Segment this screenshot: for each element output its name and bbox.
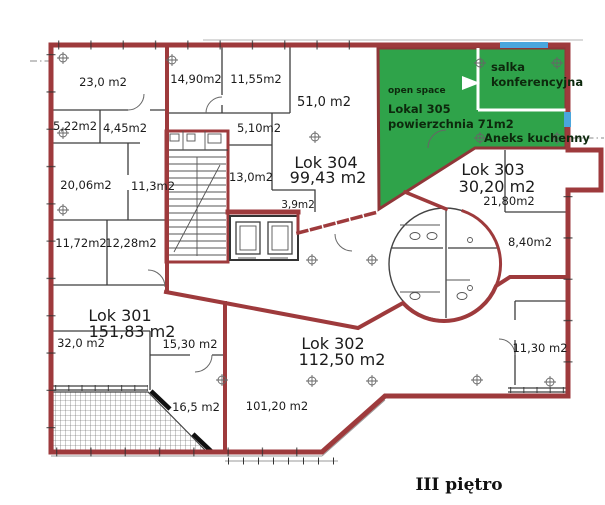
unit-label-lok302-area: 112,50 m2: [299, 350, 386, 369]
room-label-11-3: 11,3m2: [131, 179, 175, 193]
room-label-5-22: 5,22m2: [53, 119, 97, 133]
room-label-51-0: 51,0 m2: [297, 95, 351, 110]
room-label-23-0: 23,0 m2: [79, 75, 127, 89]
blue-window-top: [500, 42, 548, 48]
room-label-11-72: 11,72m2: [55, 236, 106, 250]
green-label-conference-2: konferencyjna: [491, 75, 583, 89]
green-label-open-space: open space: [388, 86, 446, 96]
floor-plan-svg: 23,0 m2 14,90m2 11,55m2 5,22m2 4,45m2 5,…: [0, 0, 605, 505]
room-label-8-40: 8,40m2: [508, 235, 552, 249]
room-label-101-20: 101,20 m2: [246, 399, 308, 413]
unit-label-lok303-area: 30,20 m2: [459, 177, 536, 196]
unit-label-lok301-area: 151,83 m2: [89, 322, 176, 341]
room-label-13-0: 13,0m2: [229, 170, 273, 184]
room-label-11-55: 11,55m2: [230, 72, 281, 86]
room-label-3-9: 3,9m2: [281, 199, 315, 211]
floor-plan-image: 23,0 m2 14,90m2 11,55m2 5,22m2 4,45m2 5,…: [0, 0, 605, 505]
green-label-lokal-305: Lokal 305: [388, 102, 451, 116]
room-label-20-06: 20,06m2: [60, 178, 111, 192]
room-label-11-30: 11,30 m2: [512, 341, 567, 355]
green-label-kitchenette: Aneks kuchenny: [484, 131, 590, 145]
room-label-14-90: 14,90m2: [170, 72, 221, 86]
blue-window-right: [564, 112, 571, 127]
unit-label-lok304-area: 99,43 m2: [290, 168, 367, 187]
floor-title: III piętro: [415, 475, 502, 495]
elevators: [230, 216, 298, 260]
room-label-5-10: 5,10m2: [237, 121, 281, 135]
green-label-area: powierzchnia 71m2: [388, 117, 514, 131]
green-label-conference-1: salka: [491, 60, 525, 74]
room-label-21-80: 21,80m2: [483, 194, 534, 208]
room-label-12-28: 12,28m2: [105, 236, 156, 250]
room-label-16-5: 16,5 m2: [172, 400, 220, 414]
room-label-4-45: 4,45m2: [103, 121, 147, 135]
